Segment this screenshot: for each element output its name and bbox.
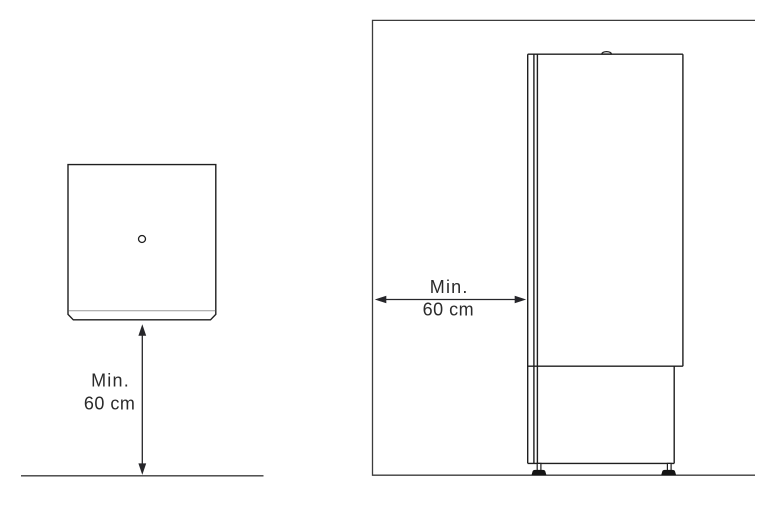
svg-text:60 cm: 60 cm [84, 394, 136, 414]
svg-text:Min.: Min. [430, 277, 469, 297]
svg-text:60 cm: 60 cm [423, 299, 475, 319]
svg-text:Min.: Min. [91, 371, 130, 391]
